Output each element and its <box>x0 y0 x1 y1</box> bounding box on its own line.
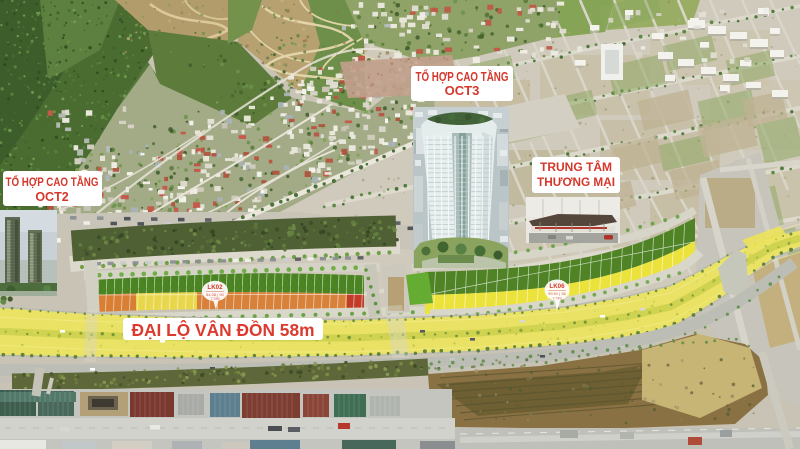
svg-text:TỔ HỢP CAO TẦNG: TỔ HỢP CAO TẦNG <box>416 69 509 84</box>
svg-text:TRUNG TÂM: TRUNG TÂM <box>540 161 612 174</box>
svg-text:OCT2: OCT2 <box>35 190 68 204</box>
svg-text:LK02: LK02 <box>207 284 223 291</box>
svg-text:LK06: LK06 <box>549 283 565 290</box>
svg-text:7.749: 7.749 <box>553 297 562 301</box>
svg-text:THƯƠNG MẠI: THƯƠNG MẠI <box>537 177 615 189</box>
svg-text:ĐẠI LỘ VÂN ĐỒN 58m: ĐẠI LỘ VÂN ĐỒN 58m <box>132 319 315 340</box>
svg-text:TỔ HỢP CAO TẦNG: TỔ HỢP CAO TẦNG <box>6 174 99 189</box>
svg-text:99.91 | 56: 99.91 | 56 <box>548 291 566 296</box>
svg-text:OCT3: OCT3 <box>445 83 480 98</box>
svg-text:7.789: 7.789 <box>211 297 220 301</box>
